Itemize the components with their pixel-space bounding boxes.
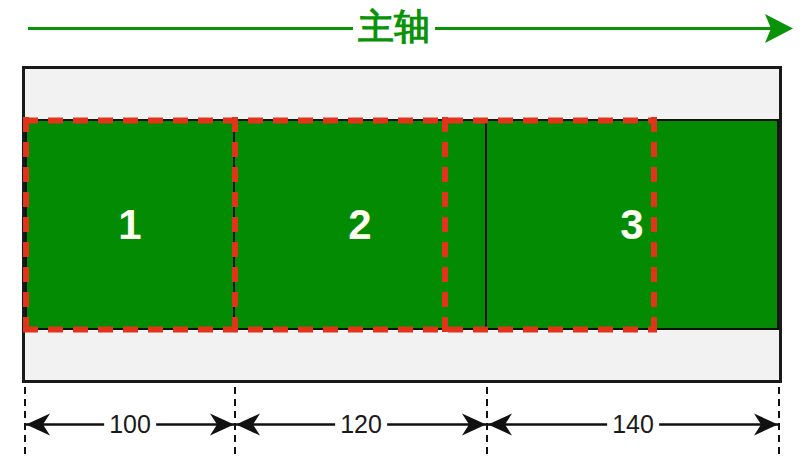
flex-item-1: 1	[25, 119, 235, 330]
dimension-value-2: 120	[335, 410, 387, 438]
flex-item-3: 3	[487, 119, 779, 330]
main-axis-label: 主轴	[353, 7, 435, 47]
flex-item-2-label: 2	[348, 201, 371, 249]
arrowhead-right-3-icon	[754, 414, 778, 436]
dimension-value-3: 140	[607, 410, 659, 438]
arrowhead-right-1-icon	[210, 414, 234, 436]
arrowhead-left-2-icon	[236, 414, 260, 436]
arrowhead-right-2-icon	[462, 414, 486, 436]
arrowhead-left-1-icon	[26, 414, 50, 436]
flex-item-1-label: 1	[118, 201, 141, 249]
flexbox-main-axis-diagram: 1 2 3	[0, 0, 803, 460]
flex-items-row: 1 2 3	[25, 119, 779, 330]
flex-item-3-label: 3	[620, 201, 643, 249]
flex-item-2: 2	[235, 119, 487, 330]
dimension-value-1: 100	[104, 410, 156, 438]
arrowhead-left-3-icon	[488, 414, 512, 436]
